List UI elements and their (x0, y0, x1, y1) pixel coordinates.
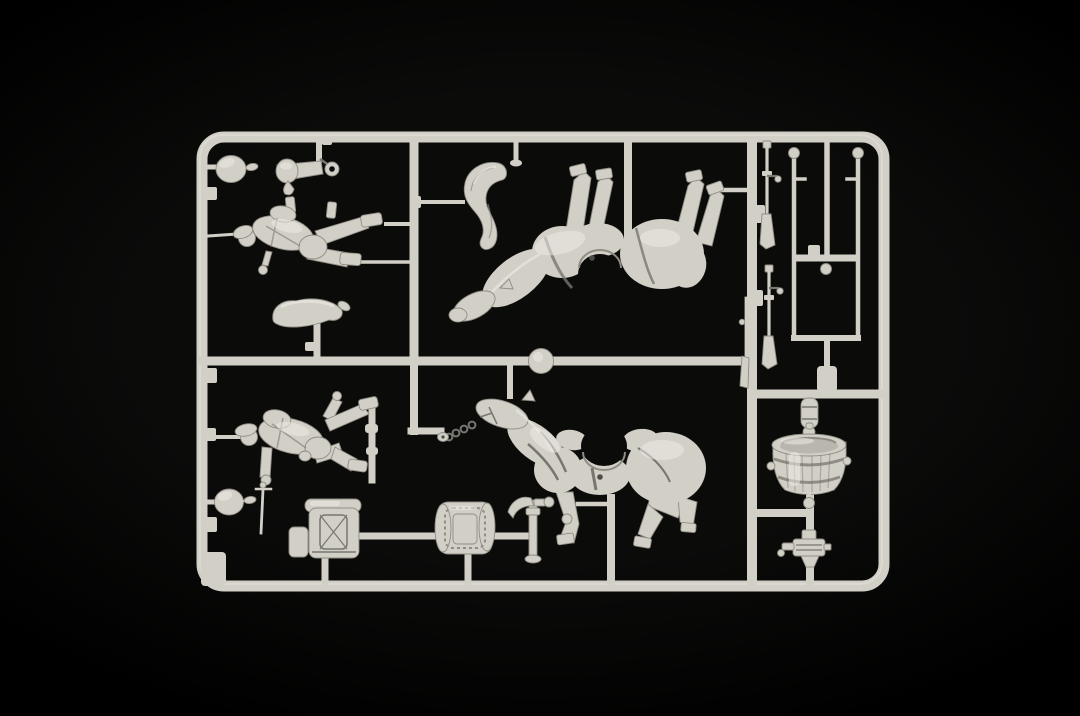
sabre-blade (261, 490, 263, 533)
boot-upper (358, 396, 379, 411)
hand-opening (329, 166, 335, 172)
rifle-2 (762, 265, 783, 369)
ear (522, 390, 535, 401)
locating-hole (597, 474, 603, 480)
arm-piece (276, 159, 339, 195)
gun-mount-part (778, 530, 832, 567)
rifle-stock (760, 214, 775, 249)
centre-panel (453, 514, 477, 544)
arm-with-sabre (256, 447, 272, 533)
pick-tool (508, 497, 554, 563)
rifle-stock (762, 336, 777, 369)
sprue-gate-leaf (244, 496, 257, 505)
sprue-disc (529, 349, 554, 374)
horse-tail (464, 162, 506, 249)
rider-boot-lower (340, 252, 362, 265)
crank-knob (778, 550, 785, 557)
lying-rider-figure (232, 197, 414, 275)
tool-foot (525, 555, 541, 563)
hoof-2 (595, 168, 612, 180)
roll-left (435, 504, 451, 552)
rider-boot-upper (360, 212, 383, 227)
sprue-gate-leaf (245, 163, 258, 172)
bolt-knob (777, 288, 783, 294)
bolt-knob (775, 176, 781, 182)
front-leg-1 (566, 171, 591, 231)
curved-arm (273, 299, 352, 327)
rod-finial (853, 148, 864, 159)
frame-corner-notch (201, 552, 226, 586)
large-backpack (289, 499, 361, 558)
helmet-ball-top (216, 156, 259, 183)
roll-right (479, 503, 495, 551)
rod-finial (789, 148, 800, 159)
saddle-cutout (581, 426, 627, 466)
marching-soldier-figure (234, 392, 379, 473)
water-barrel (767, 434, 851, 512)
canteen-cylinder (801, 398, 818, 438)
barrel-handle-left (767, 462, 775, 470)
front-hoof (556, 533, 574, 545)
photo-background (0, 0, 1080, 716)
hammer-ball (544, 497, 554, 507)
hand-ball (333, 392, 342, 401)
boot-lower (347, 459, 367, 473)
helmet-ball-bottom (215, 489, 257, 515)
horse-half-standing (472, 390, 706, 548)
pommel (260, 482, 266, 488)
rod-fork (789, 142, 864, 394)
saddlebag-pack (435, 502, 495, 554)
sprue-photo (0, 0, 1080, 716)
horse-muzzle (449, 308, 467, 322)
barrel-handle-right (843, 457, 851, 465)
saddle-cutout (578, 254, 622, 294)
side-pouch (289, 527, 308, 557)
runner-foot (817, 366, 837, 392)
locating-hole (589, 255, 595, 261)
hanging-arm (260, 447, 272, 478)
rifle-1 (760, 141, 781, 249)
